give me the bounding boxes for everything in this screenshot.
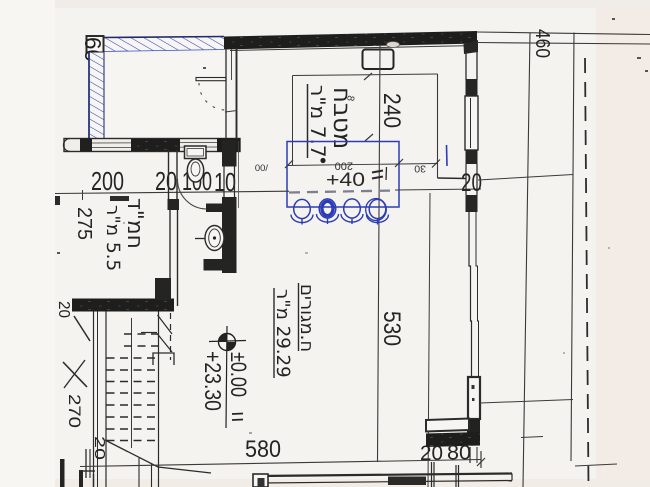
- svg-text:±0.00: ±0.00: [226, 352, 251, 397]
- svg-text:80: 80: [447, 441, 471, 465]
- svg-text:30: 30: [414, 163, 426, 175]
- svg-text:+23.30: +23.30: [200, 351, 226, 411]
- svg-text:20: 20: [155, 166, 177, 196]
- svg-text:20: 20: [420, 441, 443, 465]
- svg-text:275: 275: [73, 207, 95, 240]
- svg-text:20: 20: [461, 169, 482, 197]
- svg-text:/00: /00: [255, 162, 268, 173]
- svg-text:20: 20: [91, 436, 108, 460]
- svg-text:460: 460: [531, 29, 553, 58]
- svg-text:270: 270: [65, 394, 84, 428]
- svg-text:20: 20: [55, 301, 72, 318]
- svg-text:530: 530: [378, 311, 405, 346]
- svg-text:580: 580: [245, 436, 281, 463]
- svg-text:10: 10: [214, 167, 236, 197]
- svg-text:+40: +40: [326, 169, 365, 191]
- svg-text:240: 240: [378, 93, 405, 128]
- svg-text:200: 200: [91, 166, 124, 196]
